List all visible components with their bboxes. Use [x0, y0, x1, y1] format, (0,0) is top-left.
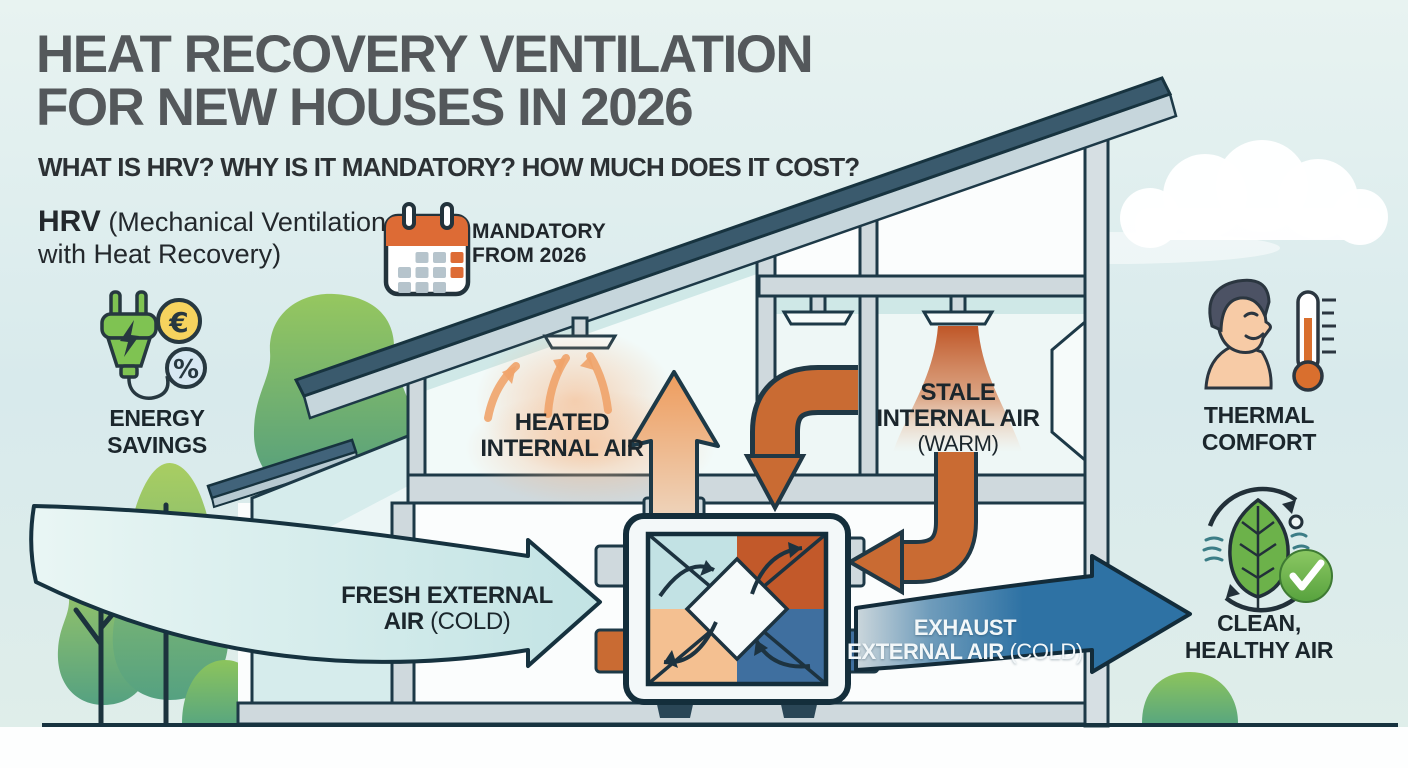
hrv-definition-line1: (Mechanical Ventilation: [101, 207, 386, 237]
badge-line2: FROM 2026: [472, 244, 606, 268]
exhaust-air-label: EXHAUST EXTERNAL AIR (COLD): [847, 616, 1083, 664]
mandatory-badge: MANDATORY FROM 2026: [472, 220, 606, 268]
hrv-term: HRV: [38, 205, 101, 238]
benefit-energy-label: ENERGY SAVINGS: [107, 405, 207, 459]
stale-air-label: STALE INTERNAL AIR (WARM): [876, 380, 1039, 456]
heated-air-label: HEATED INTERNAL AIR: [480, 410, 643, 462]
page-title: HEAT RECOVERY VENTILATION FOR NEW HOUSES…: [36, 28, 812, 134]
percent-symbol: %: [173, 355, 199, 385]
page-subtitle: WHAT IS HRV? WHY IS IT MANDATORY? HOW MU…: [38, 152, 859, 183]
badge-line1: MANDATORY: [472, 220, 606, 244]
benefit-thermal-label: THERMAL COMFORT: [1202, 402, 1316, 456]
calendar-icon: [386, 204, 468, 294]
percent-circle-icon: %: [167, 349, 205, 387]
title-line1: HEAT RECOVERY VENTILATION: [36, 28, 812, 81]
euro-symbol: €: [168, 306, 188, 339]
euro-coin-icon: €: [158, 300, 200, 342]
hrv-definition-line2: with Heat Recovery): [38, 239, 386, 271]
infographic-hrv: € %: [0, 0, 1408, 768]
title-line2: FOR NEW HOUSES IN 2026: [36, 81, 812, 134]
hrv-definition: HRV (Mechanical Ventilation with Heat Re…: [38, 204, 386, 271]
check-icon: [1280, 550, 1332, 602]
benefit-clean-label: CLEAN, HEALTHY AIR: [1185, 610, 1333, 664]
hrv-core: [648, 534, 826, 684]
hrv-unit: [596, 516, 878, 718]
fresh-air-label: FRESH EXTERNAL AIR (COLD): [341, 583, 553, 635]
